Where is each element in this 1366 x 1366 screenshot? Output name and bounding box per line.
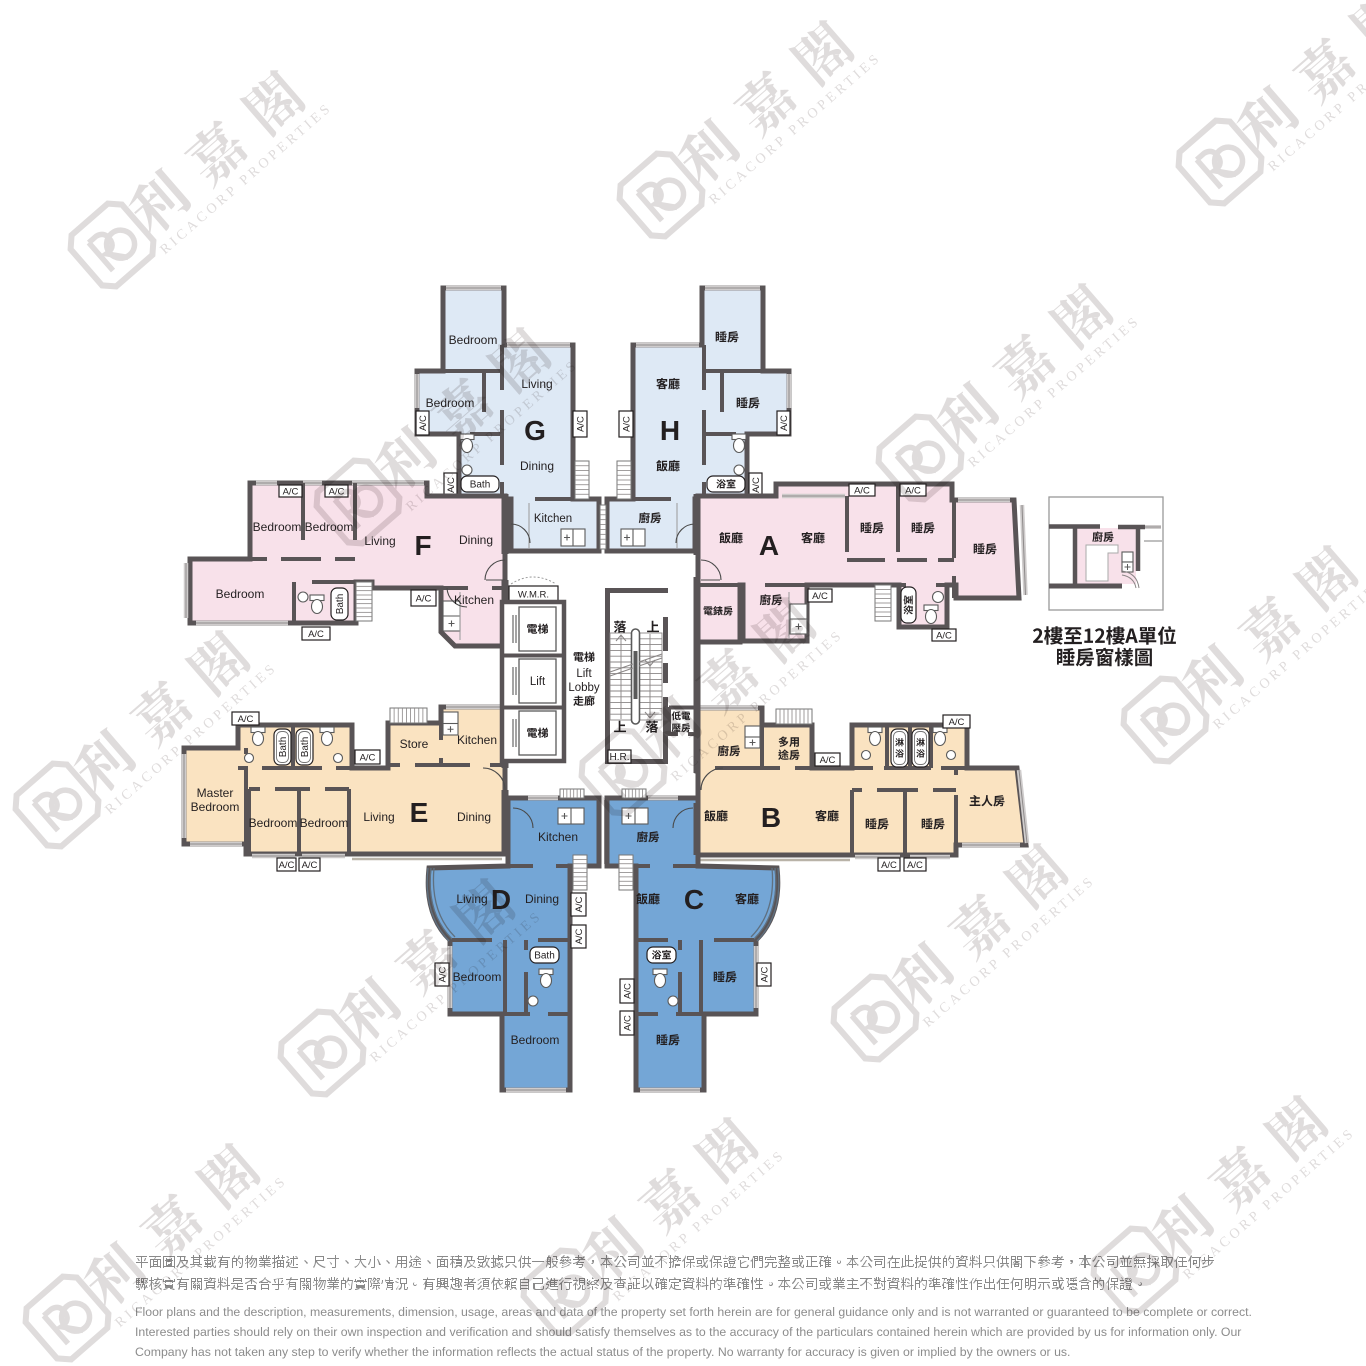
svg-text:A/C: A/C	[302, 860, 318, 871]
svg-text:A/C: A/C	[949, 717, 965, 728]
svg-text:Bedroom: Bedroom	[253, 520, 302, 534]
svg-text:E: E	[410, 797, 429, 828]
svg-text:Bedroom: Bedroom	[449, 333, 498, 347]
svg-text:A/C: A/C	[759, 966, 770, 982]
svg-text:Bedroom: Bedroom	[300, 816, 349, 830]
svg-text:Bedroom: Bedroom	[249, 816, 298, 830]
svg-text:Bath: Bath	[278, 737, 289, 758]
svg-text:H: H	[660, 415, 680, 446]
svg-text:Dining: Dining	[459, 533, 493, 547]
svg-text:A: A	[759, 530, 779, 561]
svg-text:W.M.R.: W.M.R.	[518, 589, 549, 600]
svg-text:A/C: A/C	[622, 1015, 633, 1031]
svg-text:Floor plans and the descriptio: Floor plans and the description, measure…	[135, 1305, 1252, 1319]
svg-text:A/C: A/C	[279, 860, 295, 871]
svg-text:A/C: A/C	[621, 416, 632, 432]
svg-text:A/C: A/C	[238, 714, 254, 725]
svg-text:Lift: Lift	[576, 668, 592, 680]
svg-text:Bedroom: Bedroom	[216, 587, 265, 601]
svg-text:Company has not taken any step: Company has not taken any step to verify…	[135, 1345, 1070, 1359]
svg-text:Interested parties should rely: Interested parties should rely on their …	[135, 1325, 1241, 1339]
svg-text:A/C: A/C	[779, 415, 790, 431]
svg-text:A/C: A/C	[751, 477, 762, 493]
svg-text:Living: Living	[363, 810, 394, 824]
svg-text:Bedroom: Bedroom	[191, 800, 240, 814]
svg-text:Bath: Bath	[470, 480, 491, 491]
svg-text:A/C: A/C	[574, 928, 585, 944]
svg-text:Bedroom: Bedroom	[511, 1033, 560, 1047]
svg-text:A/C: A/C	[936, 630, 952, 641]
svg-text:Master: Master	[197, 786, 234, 800]
svg-text:Store: Store	[400, 737, 429, 751]
svg-text:Kitchen: Kitchen	[534, 513, 572, 525]
svg-text:F: F	[414, 530, 431, 561]
svg-text:B: B	[761, 802, 781, 833]
svg-text:Kitchen: Kitchen	[538, 830, 578, 844]
svg-text:Lobby: Lobby	[568, 682, 600, 694]
svg-text:A/C: A/C	[308, 629, 324, 640]
svg-text:A/C: A/C	[622, 983, 633, 999]
svg-text:A/C: A/C	[812, 591, 828, 602]
svg-text:Kitchen: Kitchen	[454, 593, 494, 607]
svg-text:A/C: A/C	[360, 752, 376, 763]
svg-text:Dining: Dining	[457, 810, 491, 824]
svg-text:Kitchen: Kitchen	[457, 733, 497, 747]
svg-text:A/C: A/C	[854, 485, 870, 496]
svg-text:A/C: A/C	[907, 860, 923, 871]
svg-text:A/C: A/C	[418, 415, 429, 431]
svg-text:A/C: A/C	[575, 416, 586, 432]
svg-text:Dining: Dining	[520, 459, 554, 473]
svg-text:Bath: Bath	[335, 594, 346, 615]
svg-text:C: C	[684, 884, 704, 915]
svg-text:A/C: A/C	[574, 896, 585, 912]
svg-text:A/C: A/C	[820, 755, 836, 766]
svg-text:A/C: A/C	[416, 593, 432, 604]
svg-text:Bath: Bath	[300, 737, 311, 758]
svg-text:Bath: Bath	[534, 951, 555, 962]
svg-text:G: G	[524, 415, 546, 446]
svg-text:A/C: A/C	[881, 860, 897, 871]
svg-text:A/C: A/C	[283, 486, 299, 497]
svg-text:Dining: Dining	[525, 892, 559, 906]
svg-text:Lift: Lift	[530, 676, 546, 688]
